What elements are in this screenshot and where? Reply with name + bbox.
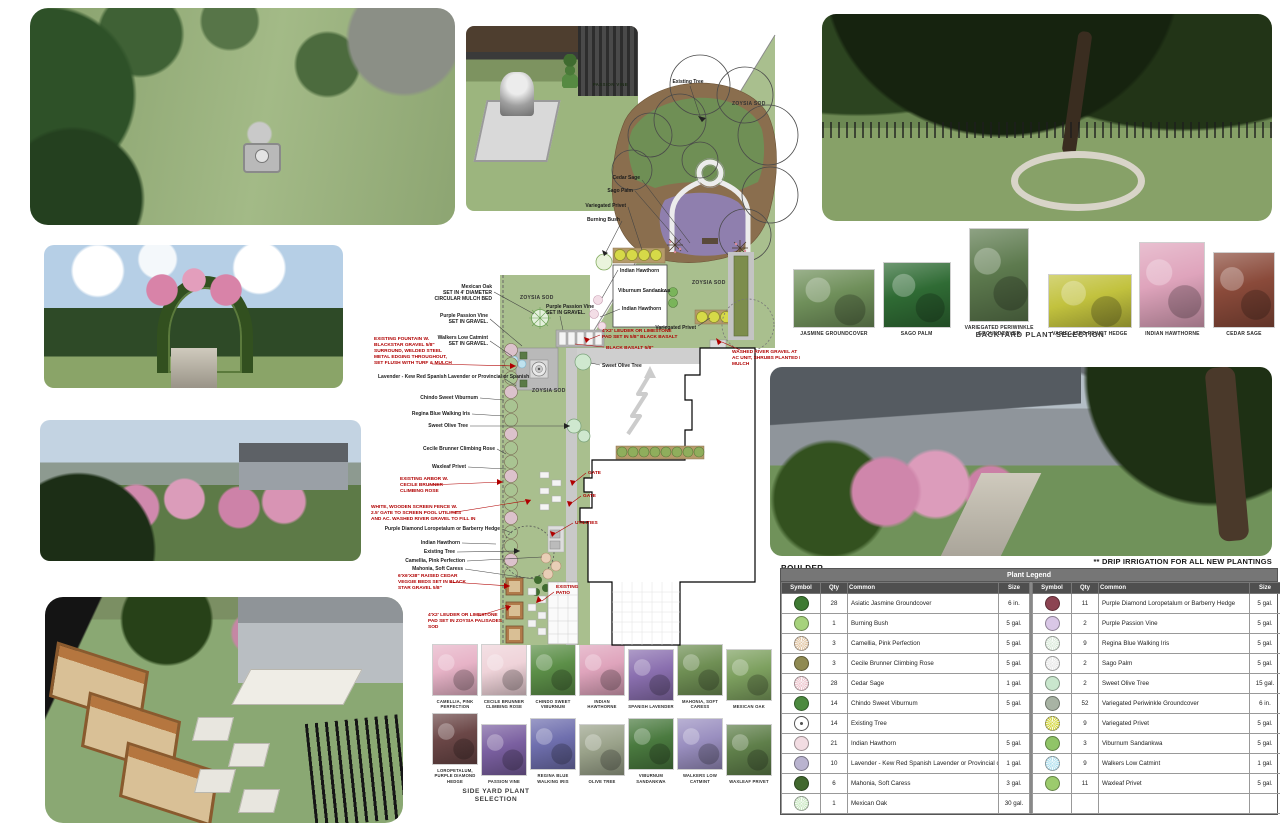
legend-size: 15 gal. — [1250, 674, 1280, 694]
legend-qty: 28 — [821, 674, 848, 694]
legend-qty: 2 — [1072, 674, 1099, 694]
plant-symbol — [1045, 696, 1060, 711]
legend-row: 11Waxleaf Privet5 gal. — [1033, 774, 1280, 794]
legend-common-name: Burning Bush — [848, 614, 999, 634]
render-azalea-bed — [40, 420, 361, 561]
legend-header-common: Common — [848, 583, 999, 594]
legend-size: 5 gal. — [1250, 714, 1280, 734]
plant-photo-item: VARIEGATED PERIWINKLE GROUNDCOVER — [958, 228, 1040, 338]
ann-patio: EXISTING — [556, 584, 579, 590]
legend-common-name: Purple Diamond Loropetalum or Barberry H… — [1099, 594, 1250, 614]
metal-fence-shape — [305, 714, 403, 823]
house-outline — [580, 348, 755, 645]
legend-row: 1Mexican Oak30 gal. — [782, 794, 1030, 814]
plant-photo-item: VIBURNUM SANDANKWA — [628, 718, 674, 784]
render-backyard-big-tree — [822, 14, 1272, 221]
legend-row: 21Indian Hawthorn5 gal. — [782, 734, 1030, 754]
legend-common-name: Viburnum Sandankwa — [1099, 734, 1250, 754]
plant-photo-label: SAGO PALM — [901, 331, 933, 337]
ann-sweet-olive: Sweet Olive Tree — [428, 423, 468, 429]
legend-common-name: Sago Palm — [1099, 654, 1250, 674]
legend-qty: 9 — [1072, 754, 1099, 774]
legend-qty: 11 — [1072, 594, 1099, 614]
ann-basalt: BLACK BASALT 5/8" — [606, 345, 654, 351]
plant-photo-item: INDIAN HAWTHORNE — [1139, 242, 1205, 337]
legend-size: 5 gal. — [1250, 774, 1280, 794]
house-shape — [239, 443, 348, 491]
legend-row: 6Mahonia, Soft Caress3 gal. — [782, 774, 1030, 794]
legend-qty: 21 — [821, 734, 848, 754]
plant-photo-label: CHINDO SWEET VIBURNUM — [530, 699, 576, 710]
paver-shape — [192, 717, 234, 741]
legend-qty: 52 — [1072, 694, 1099, 714]
ann-veggie: 6'X6'X38" RAISED CEDAR — [398, 573, 458, 579]
legend-header-common: Common — [1099, 583, 1250, 594]
legend-qty: 28 — [821, 594, 848, 614]
legend-size: 5 gal. — [1250, 734, 1280, 754]
svg-text:CIRCULAR MULCH BED: CIRCULAR MULCH BED — [435, 296, 493, 302]
plant-symbol — [1045, 676, 1060, 691]
plant-photo-label: MAHONIA, SOFT CARESS — [677, 699, 723, 710]
ann-chindo: Chindo Sweet Viburnum — [420, 395, 478, 401]
circular-walk-shape — [1011, 151, 1145, 211]
burning-bush-symbol — [596, 254, 612, 270]
svg-text:2.5' GATE TO SCREEN POOL UTILI: 2.5' GATE TO SCREEN POOL UTILITIES — [371, 510, 462, 516]
drip-irrigation-note: ** DRIP IRRIGATION FOR ALL NEW PLANTINGS — [1093, 557, 1272, 566]
plant-photo-item: WALKERS LOW CATMINT — [677, 718, 723, 784]
plant-photo-label: CEDAR SAGE — [1226, 331, 1261, 337]
plant-photo-label: VIBURNUM SANDANKWA — [628, 773, 674, 784]
legend-common-name: Sweet Olive Tree — [1099, 674, 1250, 694]
legend-qty: 3 — [821, 654, 848, 674]
svg-text:MULCH: MULCH — [732, 361, 750, 367]
ann-iris: Regina Blue Walking Iris — [412, 411, 470, 417]
plant-legend-table: Plant Legend SymbolQtyCommonSize28Asiati… — [780, 568, 1278, 815]
plant-symbol — [1045, 776, 1060, 791]
ann-existing-tree-side: Existing Tree — [424, 549, 455, 555]
plant-symbol — [1045, 716, 1060, 731]
garage-outline — [613, 265, 667, 327]
legend-common-name: Indian Hawthorn — [848, 734, 999, 754]
ann-loropetalum: Purple Diamond Loropetalum or Barberry H… — [385, 526, 501, 532]
legend-size: 5 gal. — [999, 654, 1030, 674]
legend-row: 52Variegated Periwinkle Groundcover6 in. — [1033, 694, 1280, 714]
plant-symbol — [794, 736, 809, 751]
roof-shape — [770, 367, 1081, 450]
plant-photo-item: MEXICAN OAK — [726, 649, 772, 709]
ann-hawthorn-3: Indian Hawthorn — [622, 306, 661, 312]
plant-symbol — [794, 656, 809, 671]
svg-text:VEGGIE BEDS SET IN BLACK: VEGGIE BEDS SET IN BLACK — [398, 579, 467, 585]
legend-qty: 10 — [821, 754, 848, 774]
legend-common-name: Walkers Low Catmint — [1099, 754, 1250, 774]
legend-common-name: Cecile Brunner Climbing Rose — [848, 654, 999, 674]
plant-photo — [1048, 274, 1132, 328]
sod-label: ZOYSIA SOD — [692, 280, 726, 286]
legend-row: 3Viburnum Sandankwa5 gal. — [1033, 734, 1280, 754]
plant-photo — [883, 262, 951, 328]
ann-viburnum-sandankwa: Viburnum Sandankwa — [618, 288, 670, 294]
plant-symbol — [1045, 656, 1060, 671]
sod-label: ZOYSIA SOD — [532, 388, 566, 394]
sideyard-plant-strip-row2: LOROPETALUM, PURPLE DIAMOND HEDGEPASSION… — [432, 713, 772, 784]
veggie-beds — [506, 578, 523, 643]
svg-text:PAD SET IN 5/8" BLACK BASALT: PAD SET IN 5/8" BLACK BASALT — [602, 334, 677, 340]
legend-row: 28Cedar Sage1 gal. — [782, 674, 1030, 694]
legend-qty: 9 — [1072, 634, 1099, 654]
legend-common-name: Variegated Privet — [1099, 714, 1250, 734]
legend-size: 5 gal. — [1250, 594, 1280, 614]
privet-hedge-strip — [734, 256, 748, 336]
plant-symbol — [794, 756, 809, 771]
landscape-design-board: PASSION VINE JASMINE GROUNDCOVERSAGO PAL… — [0, 0, 1280, 828]
legend-qty: 11 — [1072, 774, 1099, 794]
plant-photo-label: JASMINE GROUNDCOVER — [800, 331, 867, 337]
legend-row: 2Sweet Olive Tree15 gal. — [1033, 674, 1280, 694]
plant-photo-label: SPANISH LAVENDER — [628, 704, 673, 709]
legend-common-name: Variegated Periwinkle Groundcover — [1099, 694, 1250, 714]
legend-common-name: Chindo Sweet Viburnum — [848, 694, 999, 714]
paver-shape — [194, 769, 236, 793]
leuder-tiles — [559, 332, 602, 345]
svg-text:SURROUND, WELDED STEEL: SURROUND, WELDED STEEL — [374, 348, 442, 354]
ann-burning-bush: Burning Bush — [587, 217, 620, 223]
svg-text:PATIO: PATIO — [556, 590, 570, 596]
plant-symbol — [1045, 756, 1060, 771]
legend-common-name: Mexican Oak — [848, 794, 999, 814]
svg-text:STAR GRAVEL 5/8": STAR GRAVEL 5/8" — [398, 585, 442, 591]
plant-photo-item: CEDAR SAGE — [1213, 252, 1275, 337]
svg-text:AND AC. WASHED RIVER GRAVEL TO: AND AC. WASHED RIVER GRAVEL TO FILL IN — [371, 516, 476, 522]
legend-header-qty: Qty — [1072, 583, 1099, 594]
svg-text:SET IN GRAVEL.: SET IN GRAVEL. — [449, 341, 489, 347]
legend-row: 14Chindo Sweet Viburnum5 gal. — [782, 694, 1030, 714]
plant-photo-label: OLIVE TREE — [589, 779, 616, 784]
legend-common-name: Purple Passion Vine — [1099, 614, 1250, 634]
legend-qty: 3 — [1072, 734, 1099, 754]
legend-common-name: Camellia, Pink Perfection — [848, 634, 999, 654]
legend-size: 30 gal. — [999, 794, 1030, 814]
fountain-shape — [243, 143, 281, 173]
plant-symbol — [1045, 616, 1060, 631]
plant-photo-label: INDIAN HAWTHORNE — [1145, 331, 1200, 337]
sod-label: ZOYSIA SOD — [520, 295, 554, 301]
ann-sweet-olive-2: Sweet Olive Tree — [602, 363, 642, 369]
legend-right-half: SymbolQtyCommonSize11Purple Diamond Loro… — [1032, 582, 1280, 814]
plant-photo — [432, 713, 478, 765]
ann-camellia: Camellia, Pink Perfection — [405, 558, 465, 564]
ann-cecile: Cecile Brunner Climbing Rose — [423, 446, 495, 452]
legend-size: 5 gal. — [1250, 634, 1280, 654]
legend-size: 5 gal. — [999, 614, 1030, 634]
legend-size: 6 in. — [999, 594, 1030, 614]
legend-row: 2Purple Passion Vine5 gal. — [1033, 614, 1280, 634]
plant-symbol — [794, 796, 809, 811]
walkway-shape — [940, 473, 1041, 556]
garden-path-shape — [171, 348, 217, 388]
plant-photo-item: OLIVE TREE — [579, 724, 625, 784]
legend-qty: 1 — [821, 794, 848, 814]
legend-qty: 2 — [1072, 614, 1099, 634]
plant-photo — [1213, 252, 1275, 328]
plant-symbol — [794, 716, 809, 731]
plant-symbol — [794, 776, 809, 791]
render-house-azaleas — [770, 367, 1272, 556]
plant-photo — [677, 718, 723, 770]
ann-sago-palm: Sago Palm — [607, 188, 633, 194]
legend-size: 5 gal. — [1250, 614, 1280, 634]
svg-text:AC UNIT, SHRUBS PLANTED IN: AC UNIT, SHRUBS PLANTED IN — [732, 355, 800, 361]
svg-text:SET IN GRAVEL.: SET IN GRAVEL. — [546, 310, 586, 316]
legend-header-symbol: Symbol — [1033, 583, 1072, 594]
rose-blooms-shape — [144, 268, 244, 308]
ann-gate-1: GATE — [588, 470, 602, 476]
legend-row: 9Walkers Low Catmint1 gal. — [1033, 754, 1280, 774]
plant-photo-item: WAXLEAF PRIVET — [726, 724, 772, 784]
plant-symbol — [794, 676, 809, 691]
ann-cedar-sage: Cedar Sage — [612, 175, 640, 181]
svg-text:METAL EDGING THROUGHOUT,: METAL EDGING THROUGHOUT, — [374, 354, 448, 360]
plant-symbol — [794, 696, 809, 711]
plant-photo-item: VARIEGATED PRIVET HEDGE — [1048, 274, 1132, 337]
plant-photo — [579, 724, 625, 776]
ann-variegated-privet: Variegated Privet — [585, 203, 626, 209]
topiary-pot — [520, 380, 527, 387]
legend-qty: 9 — [1072, 714, 1099, 734]
plant-photo — [628, 649, 674, 701]
ann-gate-2: GATE — [583, 493, 597, 499]
plant-photo-item: SPANISH LAVENDER — [628, 649, 674, 709]
legend-common-name: Waxleaf Privet — [1099, 774, 1250, 794]
plant-photo-item: SAGO PALM — [883, 262, 951, 337]
tree-trunk-shape — [1204, 367, 1249, 542]
legend-common-name: Mahonia, Soft Caress — [848, 774, 999, 794]
legend-row-empty — [1033, 794, 1280, 814]
legend-qty: 14 — [821, 694, 848, 714]
legend-size: 5 gal. — [999, 734, 1030, 754]
bench — [702, 238, 718, 244]
legend-row: 3Camellia, Pink Perfection5 gal. — [782, 634, 1030, 654]
plant-photo-item: REGINA BLUE WALKING IRIS — [530, 718, 576, 784]
legend-row: 14Existing Tree — [782, 714, 1030, 734]
topiary-pot — [520, 352, 527, 359]
sod-label: ZOYSIA SOD — [732, 101, 766, 107]
legend-size: 5 gal. — [999, 634, 1030, 654]
ann-mahonia: Mahonia, Soft Caress — [412, 566, 463, 572]
plant-photo-label: WAXLEAF PRIVET — [729, 779, 769, 784]
legend-common-name: Lavender - Kew Red Spanish Lavender or P… — [848, 754, 999, 774]
legend-size: 1 gal. — [999, 754, 1030, 774]
patio-shape — [231, 669, 362, 705]
legend-size: 5 gal. — [999, 694, 1030, 714]
legend-size: 1 gal. — [999, 674, 1030, 694]
sideyard-selection-caption: SIDE YARD PLANT SELECTION — [436, 788, 556, 805]
north-arrow — [628, 366, 656, 434]
paver-shape — [228, 743, 270, 767]
legend-size: 3 gal. — [999, 774, 1030, 794]
legend-qty: 2 — [1072, 654, 1099, 674]
legend-row: 9Variegated Privet5 gal. — [1033, 714, 1280, 734]
plant-photo-label: WALKERS LOW CATMINT — [677, 773, 723, 784]
backyard-selection-caption: BACKYARD PLANT SELECTION — [930, 330, 1150, 339]
legend-common-name: Cedar Sage — [848, 674, 999, 694]
ann-waxleaf: Waxleaf Privet — [432, 464, 466, 470]
plant-photo-item: LOROPETALUM, PURPLE DIAMOND HEDGE — [432, 713, 478, 784]
backyard-plant-strip: JASMINE GROUNDCOVERSAGO PALMVARIEGATED P… — [793, 228, 1275, 338]
legend-common-name: Asiatic Jasmine Groundcover — [848, 594, 999, 614]
plant-photo — [530, 718, 576, 770]
site-plan: Mexican Oak SET IN 4' DIAMETER CIRCULAR … — [370, 30, 800, 655]
legend-header-size: Size — [999, 583, 1030, 594]
plant-photo — [1139, 242, 1205, 328]
svg-text:SET IN GRAVEL.: SET IN GRAVEL. — [449, 319, 489, 325]
ann-fountain: EXISTING FOUNTAIN W. — [374, 336, 429, 342]
legend-row: 9Regina Blue Walking Iris5 gal. — [1033, 634, 1280, 654]
plant-photo — [726, 649, 772, 701]
render-rose-arch — [44, 245, 343, 388]
ann-river-gravel: WASHED RIVER GRAVEL AT — [732, 349, 797, 355]
svg-text:PAD SET IN ZOYSIA PALISADES: PAD SET IN ZOYSIA PALISADES — [428, 618, 503, 624]
legend-row: 3Cecile Brunner Climbing Rose5 gal. — [782, 654, 1030, 674]
svg-text:CLIMBING ROSE: CLIMBING ROSE — [400, 488, 439, 494]
legend-header-size: Size — [1250, 583, 1280, 594]
plant-symbol — [1045, 596, 1060, 611]
fountain-symbol-center — [538, 368, 540, 370]
legend-row: 10Lavender - Kew Red Spanish Lavender or… — [782, 754, 1030, 774]
plant-photo-label: PASSION VINE — [488, 779, 520, 784]
ann-fence: WHITE, WOODEN SCREEN FENCE W. — [371, 504, 457, 510]
plant-photo-label: REGINA BLUE WALKING IRIS — [530, 773, 576, 784]
legend-size: 1 gal. — [1250, 754, 1280, 774]
ann-pad-sod: 4'X2' LEUDER OR LIMESTONE — [428, 612, 498, 618]
legend-qty: 6 — [821, 774, 848, 794]
legend-qty: 3 — [821, 634, 848, 654]
plant-photo-label: INDIAN HAWTHORNE — [579, 699, 625, 710]
legend-header-qty: Qty — [821, 583, 848, 594]
legend-size: 5 gal. — [1250, 654, 1280, 674]
fence-shape — [822, 122, 1272, 138]
legend-common-name: Regina Blue Walking Iris — [1099, 634, 1250, 654]
plant-legend-title: Plant Legend — [781, 569, 1277, 582]
plant-photo-label: MEXICAN OAK — [733, 704, 765, 709]
ann-arbor: EXISTING ARBOR W. — [400, 476, 448, 482]
svg-text:BLACKSTAR GRAVEL 5/8": BLACKSTAR GRAVEL 5/8" — [374, 342, 435, 348]
ann-existing-tree-top: Existing Tree — [672, 79, 703, 85]
svg-text:SOD: SOD — [428, 624, 439, 630]
legend-qty: 14 — [821, 714, 848, 734]
plant-photo-item: JASMINE GROUNDCOVER — [793, 269, 875, 337]
svg-text:SET FLUSH WITH TURF & MULCH: SET FLUSH WITH TURF & MULCH — [374, 360, 452, 366]
plant-photo — [793, 269, 875, 328]
paver-shape — [238, 789, 280, 813]
svg-text:CECILE BRUNNER: CECILE BRUNNER — [400, 482, 443, 488]
render-raised-veggie-beds — [45, 597, 403, 823]
plant-photo — [481, 724, 527, 776]
legend-row: 1Burning Bush5 gal. — [782, 614, 1030, 634]
ann-lavender: Lavender - Kew Red Spanish Lavender or P… — [378, 374, 529, 380]
plant-photo-item: PASSION VINE — [481, 724, 527, 784]
legend-qty: 1 — [821, 614, 848, 634]
plant-symbol — [1045, 736, 1060, 751]
plant-photo-label: CECILE BRUNNER CLIMBING ROSE — [481, 699, 527, 710]
legend-row: 28Asiatic Jasmine Groundcover6 in. — [782, 594, 1030, 614]
plant-photo — [726, 724, 772, 776]
legend-row: 2Sago Palm5 gal. — [1033, 654, 1280, 674]
legend-row: 11Purple Diamond Loropetalum or Barberry… — [1033, 594, 1280, 614]
plant-photo-label: LOROPETALUM, PURPLE DIAMOND HEDGE — [432, 768, 478, 784]
legend-size: 6 in. — [1250, 694, 1280, 714]
legend-size — [999, 714, 1030, 734]
ann-hawthorn-2: Indian Hawthorn — [620, 268, 659, 274]
ann-utilities: UTILITIES — [575, 520, 598, 526]
plant-photo-label: CAMELLIA, PINK PERFECTION — [432, 699, 478, 710]
plant-photo — [969, 228, 1029, 322]
plant-photo — [628, 718, 674, 770]
legend-left-half: SymbolQtyCommonSize28Asiatic Jasmine Gro… — [781, 582, 1030, 814]
legend-common-name: Existing Tree — [848, 714, 999, 734]
ann-pad-basalt: 4'X2' LEUDER OR LIMESTONE — [602, 328, 672, 334]
plant-symbol — [1045, 636, 1060, 651]
ann-hawthorn: Indian Hawthorn — [421, 540, 460, 546]
